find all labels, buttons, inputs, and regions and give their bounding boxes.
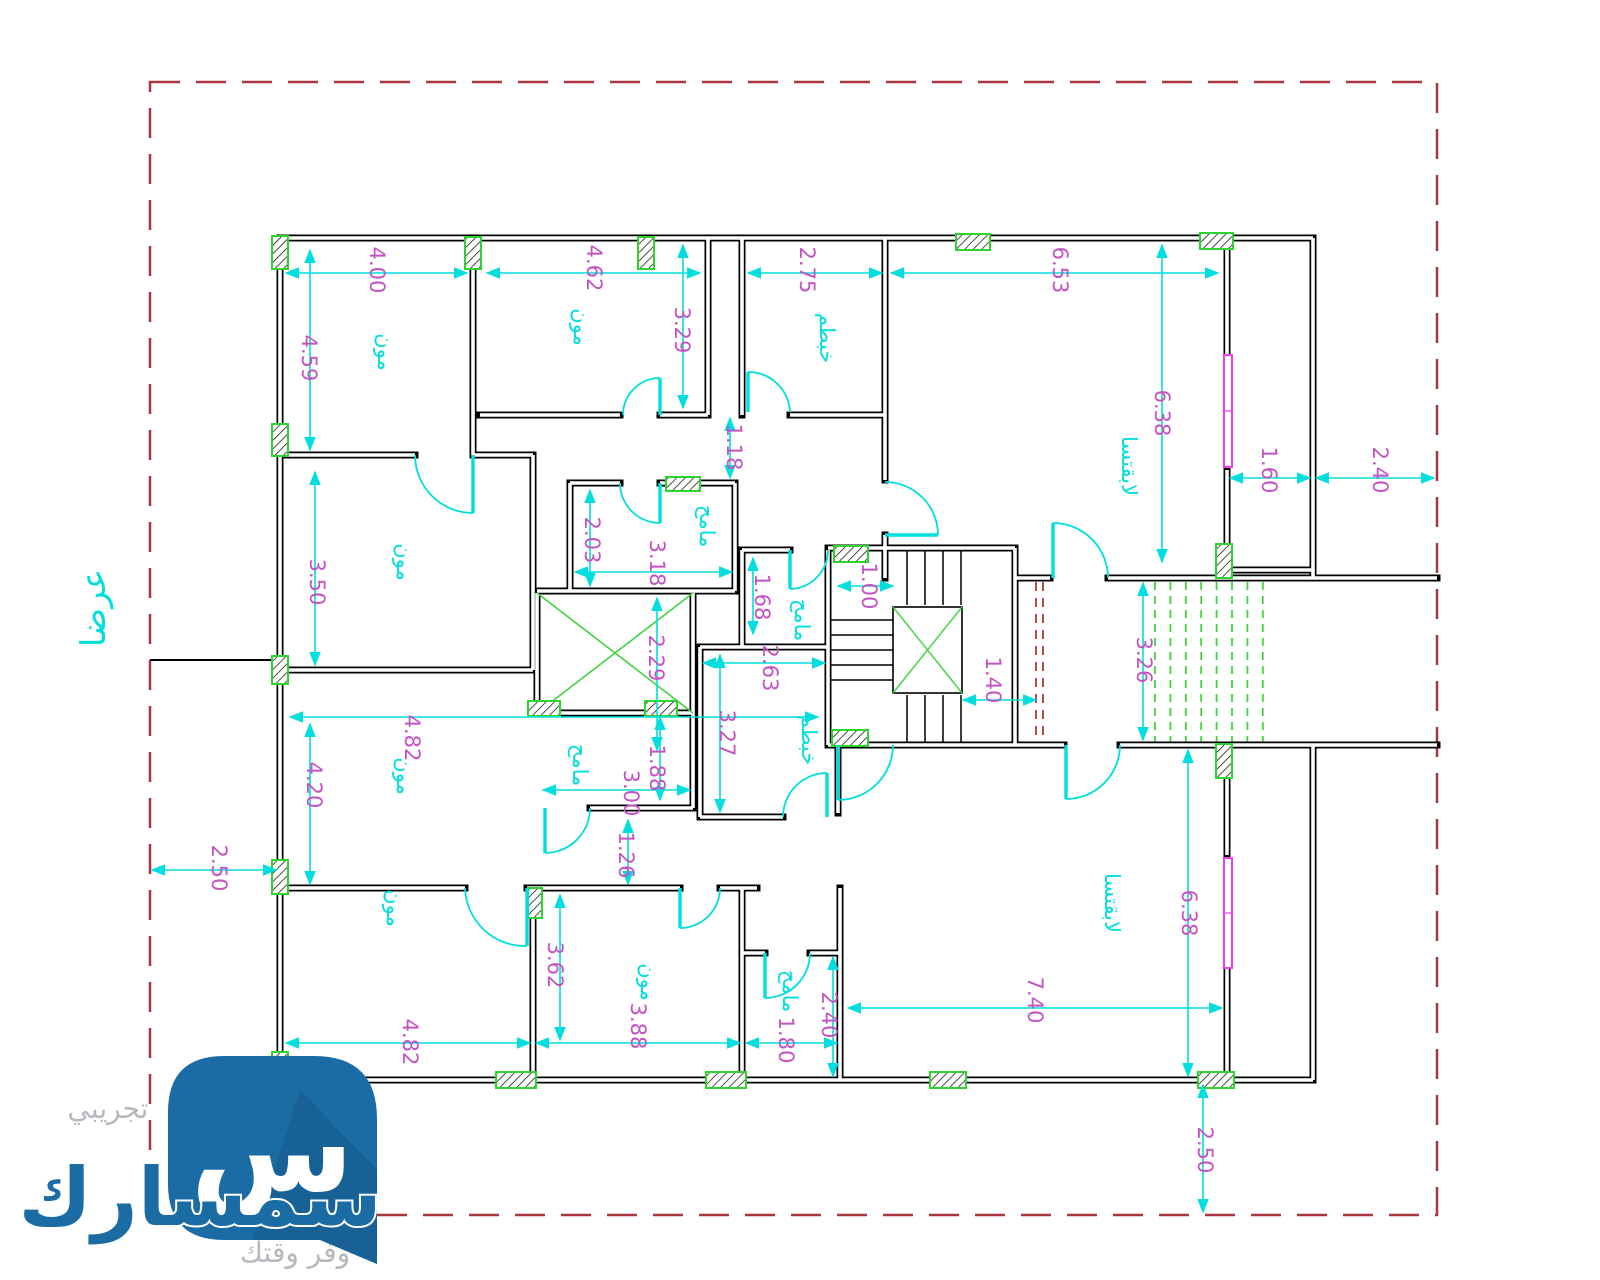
- walls-layer: [150, 238, 1437, 1080]
- door-swing-arc: [415, 455, 473, 513]
- room-label: لابقتسا: [1100, 873, 1124, 933]
- door-swing-arc: [748, 372, 790, 412]
- dimension-label: 7.40: [1023, 977, 1047, 1024]
- door-swing-arc: [545, 808, 590, 853]
- dimension-label: 1.68: [750, 574, 774, 621]
- room-label: مون: [382, 889, 406, 927]
- column-hatched: [666, 477, 700, 491]
- watermark-trial: تجريبي: [68, 1092, 149, 1125]
- door-swing-arc: [838, 745, 893, 800]
- dimension-label: 2.50: [207, 845, 231, 892]
- dimension-label: 4.82: [400, 715, 424, 762]
- dimension-label: 4.00: [365, 247, 389, 294]
- door-swing-arc: [623, 378, 660, 415]
- labels-layer: 4.004.622.756.534.593.296.381.602.401.18…: [207, 245, 1392, 1174]
- column-hatched: [1216, 544, 1232, 578]
- column-hatched: [834, 546, 868, 562]
- column-hatched: [465, 237, 481, 269]
- room-label: مون: [392, 543, 416, 581]
- watermark-brand: سمسارك: [18, 1151, 381, 1245]
- dimension-label: 4.62: [582, 245, 606, 292]
- dimension-label: 2.75: [795, 247, 819, 294]
- dimension-label: 3.26: [1132, 637, 1156, 684]
- dimension-label: 1.00: [857, 563, 881, 610]
- column-hatched: [930, 1072, 966, 1088]
- column-hatched: [272, 860, 288, 894]
- light-well-x: [537, 593, 693, 713]
- door-swing-arc: [783, 773, 827, 817]
- column-hatched: [272, 424, 288, 456]
- dimension-label: 2.50: [1193, 1127, 1217, 1174]
- door-swing-arc: [680, 888, 720, 928]
- dimension-label: 1.60: [1257, 447, 1281, 494]
- watermark-logo: س تجريبي سمسارك وفر وقتك: [18, 1056, 381, 1269]
- dimension-label: 1.88: [645, 745, 669, 792]
- column-hatched: [496, 1072, 536, 1088]
- column-hatched: [1200, 233, 1233, 249]
- dimension-label: 2.40: [1368, 447, 1392, 494]
- dimension-label: 3.62: [543, 942, 567, 989]
- dimension-label: 6.53: [1048, 247, 1072, 294]
- door-swing-arc: [790, 550, 828, 589]
- door-swing-arc: [1053, 523, 1108, 578]
- dimension-label: 4.20: [302, 762, 326, 809]
- column-hatched: [272, 656, 288, 684]
- room-label: خبطم: [814, 313, 839, 364]
- column-hatched: [272, 236, 288, 269]
- column-hatched: [832, 730, 868, 746]
- room-label: مون: [569, 308, 593, 346]
- stair-treads: [830, 550, 961, 743]
- room-label: خبطم: [796, 715, 821, 766]
- dimension-label: 3.50: [305, 559, 329, 606]
- columns-layer: [272, 233, 1234, 1088]
- dimension-label: 3.18: [645, 540, 669, 587]
- door-swing-arc: [465, 888, 527, 946]
- dimension-label: 6.38: [1150, 390, 1174, 437]
- dimension-label: 6.38: [1177, 890, 1201, 937]
- dimension-label: 3.00: [619, 770, 643, 817]
- dimension-label: 1.18: [722, 424, 746, 471]
- dimension-label: 3.88: [626, 1003, 650, 1050]
- room-label: مامح: [568, 744, 592, 786]
- column-hatched: [956, 234, 990, 250]
- room-label: مون: [392, 757, 416, 795]
- room-label: مون: [373, 333, 397, 371]
- windows-layer: [1224, 355, 1232, 968]
- column-hatched: [1216, 744, 1232, 778]
- dimension-label: 2.40: [817, 992, 841, 1039]
- dimension-label: 1.40: [981, 657, 1005, 704]
- room-label: مامح: [790, 599, 814, 641]
- column-hatched: [528, 888, 542, 918]
- floorplan-canvas: 4.004.622.756.534.593.296.381.602.401.18…: [0, 0, 1600, 1280]
- dimension-label: 4.59: [297, 335, 321, 382]
- watermark-tagline: وفر وقتك: [240, 1236, 350, 1269]
- door-swing-arc: [1066, 745, 1120, 799]
- column-hatched: [645, 701, 677, 716]
- entrance-steps-layer: [1155, 582, 1263, 750]
- room-label: مامح: [695, 505, 719, 547]
- street-label: عرضا: [74, 569, 114, 647]
- column-hatched: [706, 1072, 746, 1088]
- dimension-label: 2.03: [580, 517, 604, 564]
- dimension-label: 3.29: [670, 307, 694, 354]
- dimension-label: 3.27: [715, 710, 739, 757]
- dimension-label: 2.63: [758, 645, 782, 692]
- room-label: مامح: [778, 970, 802, 1012]
- door-swing-arc: [620, 483, 660, 523]
- dimension-label: 4.82: [398, 1019, 422, 1066]
- room-label: لابقتسا: [1117, 436, 1141, 496]
- dimension-label: 2.29: [644, 635, 668, 682]
- door-swing-arc: [885, 482, 938, 535]
- column-hatched: [638, 237, 654, 269]
- column-hatched: [528, 701, 560, 716]
- room-label: مون: [636, 963, 660, 1001]
- stair-well-x: [893, 607, 962, 693]
- dimension-label: 1.80: [774, 1017, 798, 1064]
- dimension-label: 1.26: [614, 832, 638, 879]
